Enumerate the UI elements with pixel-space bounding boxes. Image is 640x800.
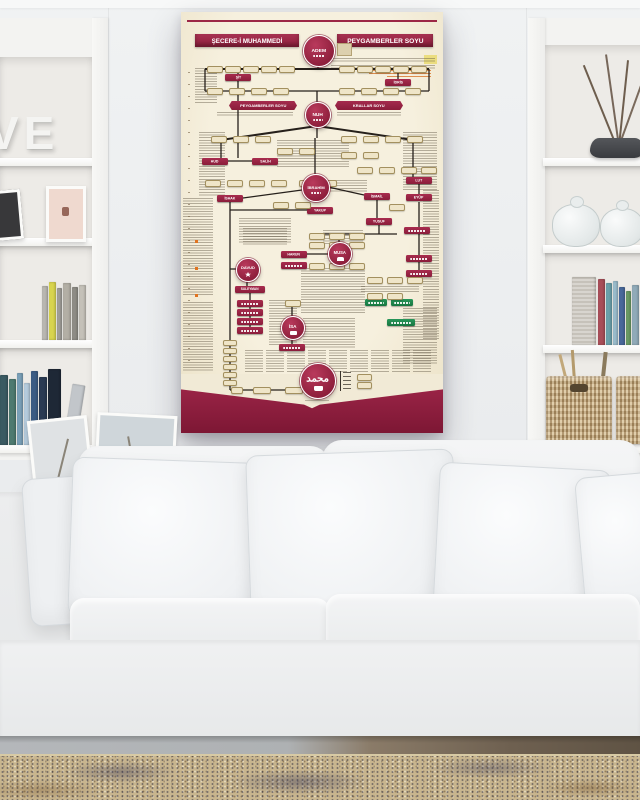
muhammed-circle: محمد: [300, 363, 336, 399]
tree-node-pill: [253, 387, 271, 394]
ibrahim-label: İBRAHİM: [307, 185, 324, 190]
sofa-skirt: [0, 640, 640, 746]
circle-subtext: [313, 119, 323, 121]
node-hud: HUD: [202, 158, 228, 165]
tree-node-pill: [405, 88, 421, 95]
node-unread: [406, 270, 432, 277]
adem-circle: ADEM: [303, 35, 335, 67]
musa-label: MUSA: [334, 250, 346, 255]
tree-node-pill: [243, 66, 259, 73]
tree-node-pill: [393, 66, 409, 73]
tree-node-pill: [329, 233, 345, 240]
ceiling-strip: [0, 0, 640, 8]
node-eyup: EYÜP: [406, 194, 432, 201]
rug: [0, 754, 640, 800]
tree-node-pill: [299, 148, 315, 155]
node-unread: [237, 318, 263, 325]
tree-node-pill: [357, 374, 372, 381]
green-node: [387, 319, 415, 326]
book-spine: [606, 283, 612, 345]
node-yakup: YAKUP: [307, 207, 333, 214]
circle-subtext: [311, 192, 321, 194]
tree-node-pill: [223, 380, 237, 386]
node-ishak: İSHAK: [217, 195, 243, 202]
tree-node-pill: [285, 300, 301, 307]
tree-node-pill: [251, 88, 267, 95]
book-spine: [572, 277, 596, 345]
ibrahim-circle: İBRAHİM: [302, 174, 330, 202]
tree-node-pill: [385, 136, 401, 143]
tree-node-pill: [401, 167, 417, 174]
tree-node-pill: [387, 293, 403, 300]
wall-seam-right: [526, 0, 527, 450]
book-icon: [290, 331, 297, 335]
book-icon: [314, 386, 323, 391]
rug-edge: [0, 754, 640, 756]
banner-peygamberler-soyu: PEYGAMBERLER SOYU: [229, 101, 297, 110]
green-node: [391, 299, 413, 306]
living-room-scene: VE: [0, 0, 640, 800]
tree-node-pill: [309, 233, 325, 240]
banner-krallar-soyu: KRALLAR SOYU: [335, 101, 403, 110]
node-unread: [404, 227, 430, 234]
tree-node-pill: [205, 180, 221, 187]
node-idris: İDRİS: [385, 79, 411, 86]
tree-node-pill: [229, 88, 245, 95]
tree-node-pill: [407, 136, 423, 143]
tree-node-pill: [407, 277, 423, 284]
tree-node-pill: [255, 136, 271, 143]
tree-node-pill: [341, 152, 357, 159]
tree-node-pill: [375, 66, 391, 73]
genealogy-poster: ŞECERE-İ MUHAMMEDİ PEYGAMBERLER SOYU ADE…: [181, 12, 443, 433]
bracket-line: [343, 380, 351, 381]
node-sit: ŞİT: [225, 74, 251, 81]
bookshelf-right: [528, 18, 640, 460]
tree-node-pill: [223, 340, 237, 346]
node-yusuf: YUSUF: [366, 218, 392, 225]
book-spine: [613, 281, 618, 345]
node-unread: [237, 300, 263, 307]
tree-node-pill: [421, 167, 437, 174]
tree-node-pill: [273, 88, 289, 95]
tree-node-pill: [223, 364, 237, 370]
node-suleyman: SÜLEYMAN: [235, 286, 265, 293]
nuh-circle: NUH: [305, 102, 331, 128]
tree-node-pill: [357, 382, 372, 389]
tree-node-pill: [309, 242, 325, 249]
davud-circle: DAVUD: [236, 258, 260, 282]
tree-node-pill: [363, 152, 379, 159]
tree-node-pill: [349, 263, 365, 270]
star-icon: [245, 272, 251, 277]
node-unread: [281, 262, 307, 269]
node-unread: [237, 309, 263, 316]
tree-node-pill: [207, 66, 223, 73]
tree-node-pill: [249, 180, 265, 187]
tree-node-pill: [411, 66, 427, 73]
banner-right-label: KRALLAR SOYU: [353, 103, 385, 108]
tree-node-pill: [295, 202, 311, 209]
node-harun: HARUN: [281, 251, 307, 258]
tree-node-pill: [211, 136, 227, 143]
tree-node-pill: [271, 180, 287, 187]
node-ismail: İSMAİL: [364, 193, 390, 200]
tree-node-pill: [261, 66, 277, 73]
davud-label: DAVUD: [241, 265, 255, 270]
book-spine: [632, 285, 639, 345]
tablet-icon: [337, 257, 344, 261]
tree-node-pill: [227, 180, 243, 187]
tree-node-pill: [273, 202, 289, 209]
tree-node-pill: [279, 66, 295, 73]
muhammad-calligraphy: محمد: [307, 372, 330, 384]
node-unread: [406, 255, 432, 262]
bracket-line: [343, 372, 351, 373]
tree-node-pill: [349, 233, 365, 240]
wall-seam-left: [108, 0, 109, 450]
tree-node-pill: [383, 88, 399, 95]
nuh-label: NUH: [313, 111, 323, 116]
book-spine: [619, 287, 625, 345]
basket-handle-slot: [570, 384, 588, 392]
tree-node-pill: [363, 136, 379, 143]
isa-label: İSA: [289, 323, 297, 328]
bracket-line: [343, 376, 351, 377]
tree-node-pill: [285, 387, 303, 394]
tree-node-pill: [367, 277, 383, 284]
tree-node-pill: [309, 263, 325, 270]
tree-node-pill: [231, 387, 243, 394]
book-spine: [626, 291, 631, 345]
bracket-line: [343, 384, 351, 385]
tree-node-pill: [387, 277, 403, 284]
tree-node-pill: [357, 167, 373, 174]
bookshelf-left: VE: [0, 18, 108, 460]
green-node: [365, 299, 387, 306]
tree-node-pill: [367, 293, 383, 300]
tree-node-pill: [223, 348, 237, 354]
book-spine: [598, 279, 605, 345]
muhammad-caption: [305, 400, 329, 403]
floor-shadow: [0, 736, 640, 743]
musa-circle: MUSA: [328, 242, 352, 266]
node-unread: [237, 327, 263, 334]
tree-node-pill: [225, 66, 241, 73]
tree-node-pill: [389, 204, 405, 211]
adem-label: ADEM: [312, 47, 327, 53]
left-books-lower: [0, 18, 108, 460]
tree-node-pill: [233, 136, 249, 143]
tree-node-pill: [361, 88, 377, 95]
tree-node-pill: [207, 88, 223, 95]
node-unread: [279, 344, 305, 351]
tree-node-pill: [339, 88, 355, 95]
circle-subtext: [313, 55, 325, 57]
tree-node-pill: [223, 372, 237, 378]
tree-node-pill: [277, 148, 293, 155]
bracket-line: [343, 388, 351, 389]
tree-node-pill: [379, 167, 395, 174]
sofa: [0, 430, 640, 750]
tree-node-pill: [339, 66, 355, 73]
node-salih: SALİH: [252, 158, 278, 165]
children-bracket: [340, 371, 341, 391]
tree-node-pill: [357, 66, 373, 73]
isa-circle: İSA: [281, 316, 305, 340]
tree-node-pill: [223, 356, 237, 362]
tree-node-pill: [341, 136, 357, 143]
tree-node-pill: [349, 242, 365, 249]
rug-pattern-patches: [0, 754, 640, 800]
banner-left-label: PEYGAMBERLER SOYU: [240, 103, 286, 108]
node-lut: LUT: [406, 177, 432, 184]
